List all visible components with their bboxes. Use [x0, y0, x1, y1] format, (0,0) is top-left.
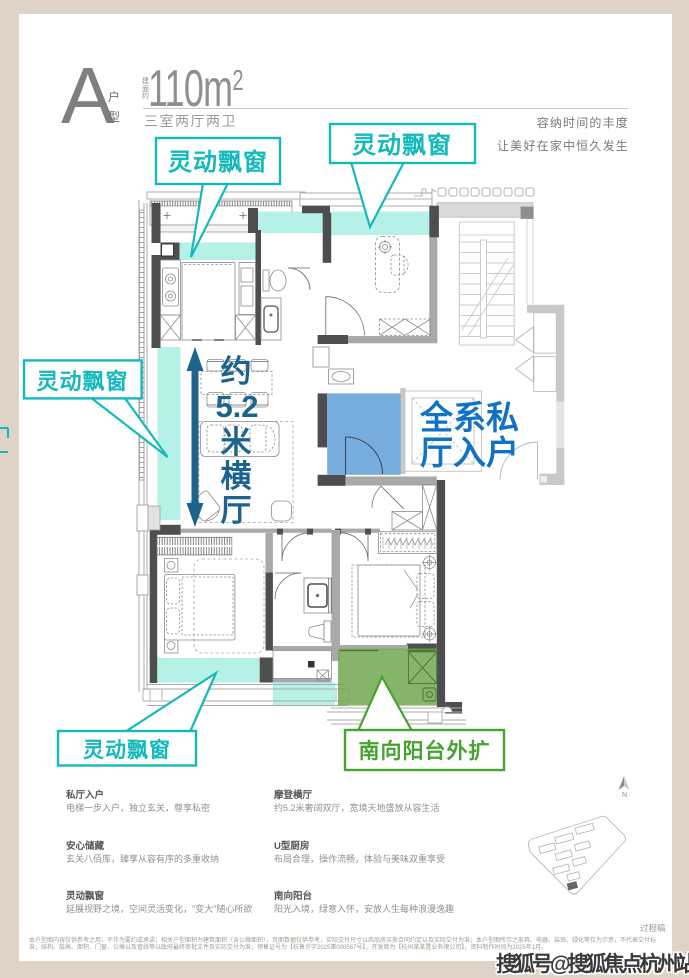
svg-text:全系私: 全系私	[419, 399, 519, 436]
svg-text:南向阳台外扩: 南向阳台外扩	[359, 739, 491, 763]
svg-text:厅入户: 厅入户	[420, 434, 519, 471]
svg-text:5.2: 5.2	[215, 389, 258, 424]
svg-text:横: 横	[221, 459, 252, 494]
svg-text:米: 米	[221, 425, 252, 460]
svg-text:灵动飘窗: 灵动飘窗	[83, 738, 171, 762]
svg-text:灵动飘窗: 灵动飘窗	[352, 131, 452, 159]
svg-text:N: N	[622, 792, 627, 799]
svg-text:灵动飘窗: 灵动飘窗	[36, 369, 128, 394]
svg-text:厅: 厅	[221, 493, 252, 528]
svg-text:约: 约	[221, 354, 252, 389]
svg-text:灵动飘窗: 灵动飘窗	[168, 148, 268, 176]
